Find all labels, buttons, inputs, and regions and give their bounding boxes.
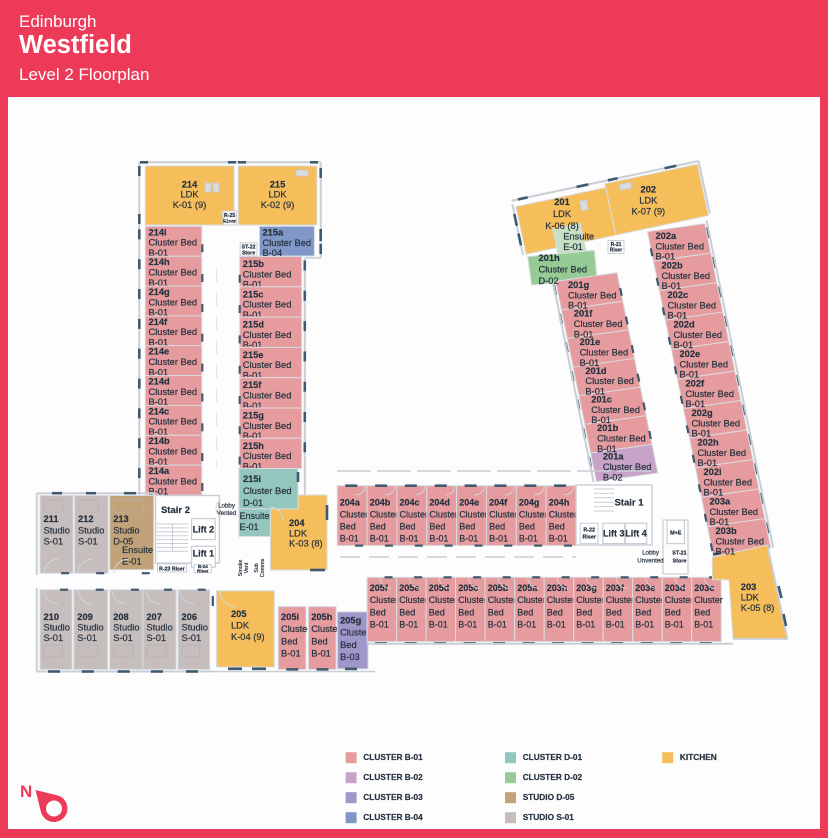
svg-text:215h: 215h xyxy=(243,441,265,451)
svg-text:Cluster: Cluster xyxy=(400,510,429,520)
svg-text:Bed: Bed xyxy=(458,607,474,617)
svg-text:Bed: Bed xyxy=(370,607,386,617)
svg-text:B-01: B-01 xyxy=(517,620,536,630)
svg-text:214e: 214e xyxy=(149,347,170,357)
svg-text:202d: 202d xyxy=(674,319,696,329)
svg-text:Cluster: Cluster xyxy=(429,510,458,520)
svg-text:211: 211 xyxy=(44,514,59,524)
svg-text:214d: 214d xyxy=(149,377,171,387)
svg-text:Cluster Bed: Cluster Bed xyxy=(656,241,705,251)
svg-text:Cluster Bed: Cluster Bed xyxy=(568,290,617,300)
svg-text:215d: 215d xyxy=(243,320,265,330)
svg-text:203e: 203e xyxy=(635,583,655,593)
svg-text:KITCHEN: KITCHEN xyxy=(680,752,717,762)
svg-text:Lift 1: Lift 1 xyxy=(193,549,215,559)
svg-text:CLUSTER D-02: CLUSTER D-02 xyxy=(523,772,583,782)
svg-text:R-22: R-22 xyxy=(583,528,595,534)
svg-text:B-01: B-01 xyxy=(281,649,301,659)
svg-text:201a: 201a xyxy=(603,452,625,462)
svg-text:B-02: B-02 xyxy=(603,472,623,482)
svg-text:CLUSTER B-02: CLUSTER B-02 xyxy=(363,772,423,782)
svg-text:Cluster Bed: Cluster Bed xyxy=(149,297,198,307)
svg-text:214: 214 xyxy=(182,180,198,190)
svg-text:205i: 205i xyxy=(281,612,299,622)
svg-text:Lift 2: Lift 2 xyxy=(193,525,215,535)
svg-text:S-01: S-01 xyxy=(78,537,98,547)
svg-text:204e: 204e xyxy=(459,498,479,508)
svg-text:Cluster: Cluster xyxy=(665,595,694,605)
svg-text:Bed: Bed xyxy=(311,636,328,646)
svg-text:Cluster: Cluster xyxy=(519,510,548,520)
svg-text:B-01: B-01 xyxy=(716,547,736,557)
svg-text:B-01: B-01 xyxy=(694,620,713,630)
svg-text:CLUSTER D-01: CLUSTER D-01 xyxy=(523,752,583,762)
svg-text:Studio: Studio xyxy=(44,525,70,535)
svg-text:Cluster Bed: Cluster Bed xyxy=(692,418,741,428)
svg-text:E-01: E-01 xyxy=(240,522,259,532)
svg-text:Edinburgh: Edinburgh xyxy=(19,12,97,31)
svg-text:Cluster Bed: Cluster Bed xyxy=(680,359,729,369)
svg-text:205f: 205f xyxy=(370,583,389,593)
svg-text:Bed: Bed xyxy=(340,640,357,650)
svg-text:B-01: B-01 xyxy=(340,534,359,544)
svg-text:Cluster: Cluster xyxy=(399,595,428,605)
svg-text:Cluster: Cluster xyxy=(488,595,517,605)
svg-text:K-04 (9): K-04 (9) xyxy=(231,632,265,642)
svg-text:B-01: B-01 xyxy=(665,620,684,630)
svg-text:S-01: S-01 xyxy=(77,633,97,643)
svg-text:202f: 202f xyxy=(686,378,706,388)
svg-text:Lift 4: Lift 4 xyxy=(625,529,647,539)
svg-text:Cluster: Cluster xyxy=(547,595,576,605)
svg-text:201c: 201c xyxy=(591,394,612,404)
svg-text:B-01: B-01 xyxy=(458,620,477,630)
svg-text:S-01: S-01 xyxy=(44,537,64,547)
svg-text:B-01: B-01 xyxy=(489,534,508,544)
svg-text:209: 209 xyxy=(77,612,93,622)
svg-text:K-03 (8): K-03 (8) xyxy=(289,539,323,549)
svg-text:B-03: B-03 xyxy=(340,652,360,662)
svg-text:Cluster Bed: Cluster Bed xyxy=(698,448,747,458)
svg-text:Bed: Bed xyxy=(488,607,504,617)
svg-text:214h: 214h xyxy=(149,257,171,267)
svg-text:Cluster Bed: Cluster Bed xyxy=(591,405,640,415)
svg-text:Bed: Bed xyxy=(694,607,710,617)
svg-text:Bed: Bed xyxy=(281,636,298,646)
svg-text:201d: 201d xyxy=(585,366,607,376)
svg-text:Bed: Bed xyxy=(489,522,505,532)
svg-text:Cluster Bed: Cluster Bed xyxy=(716,536,765,546)
svg-text:Lobby: Lobby xyxy=(218,503,236,510)
svg-text:215: 215 xyxy=(270,180,286,190)
svg-text:Ensuite: Ensuite xyxy=(240,511,270,521)
svg-text:STUDIO S-01: STUDIO S-01 xyxy=(523,812,575,822)
svg-text:Cluster Bed: Cluster Bed xyxy=(243,391,292,401)
svg-text:204f: 204f xyxy=(489,498,508,508)
svg-text:Studio: Studio xyxy=(182,623,208,633)
svg-text:Bed: Bed xyxy=(576,607,592,617)
svg-text:203b: 203b xyxy=(716,526,738,536)
svg-text:B-01: B-01 xyxy=(370,620,389,630)
svg-text:213: 213 xyxy=(113,514,129,524)
svg-text:E-01: E-01 xyxy=(563,242,583,252)
svg-text:Cluster Bed: Cluster Bed xyxy=(668,300,717,310)
svg-text:Cluster Bed: Cluster Bed xyxy=(243,360,292,370)
svg-text:215e: 215e xyxy=(243,350,264,360)
svg-text:Cluster: Cluster xyxy=(281,624,310,634)
svg-text:214f: 214f xyxy=(149,317,169,327)
svg-text:Cluster: Cluster xyxy=(459,510,488,520)
svg-text:Riser: Riser xyxy=(582,535,596,541)
svg-text:Studio: Studio xyxy=(146,623,172,633)
svg-text:Ensuite: Ensuite xyxy=(122,545,153,555)
svg-text:201g: 201g xyxy=(568,280,590,290)
svg-text:208: 208 xyxy=(113,612,129,622)
svg-text:214c: 214c xyxy=(149,406,170,416)
svg-text:Cluster Bed: Cluster Bed xyxy=(574,319,623,329)
svg-text:Lobby: Lobby xyxy=(642,550,660,557)
svg-text:Cluster Bed: Cluster Bed xyxy=(263,238,312,248)
svg-text:Unvented: Unvented xyxy=(637,558,664,565)
svg-text:B-01: B-01 xyxy=(429,620,448,630)
svg-text:215i: 215i xyxy=(243,474,261,484)
svg-text:202e: 202e xyxy=(680,349,701,359)
svg-text:Level 2 Floorplan: Level 2 Floorplan xyxy=(19,65,149,84)
svg-text:204g: 204g xyxy=(519,498,540,508)
svg-text:R-23 Riser: R-23 Riser xyxy=(159,567,185,573)
svg-text:203c: 203c xyxy=(694,583,714,593)
svg-text:202h: 202h xyxy=(698,437,720,447)
svg-text:201f: 201f xyxy=(574,309,594,319)
svg-text:LDK: LDK xyxy=(741,592,760,602)
svg-text:Cluster Bed: Cluster Bed xyxy=(149,238,198,248)
svg-text:210: 210 xyxy=(44,612,60,622)
svg-text:204a: 204a xyxy=(340,498,361,508)
svg-text:205: 205 xyxy=(231,609,247,619)
svg-text:LDK: LDK xyxy=(289,528,308,538)
svg-text:B-01: B-01 xyxy=(576,620,595,630)
svg-text:202c: 202c xyxy=(668,290,689,300)
svg-text:215b: 215b xyxy=(243,259,265,269)
svg-text:201e: 201e xyxy=(580,337,601,347)
svg-text:D-02: D-02 xyxy=(539,276,559,286)
svg-text:Cluster Bed: Cluster Bed xyxy=(686,389,735,399)
svg-text:CLUSTER B-03: CLUSTER B-03 xyxy=(363,792,423,802)
svg-text:LDK: LDK xyxy=(268,190,287,200)
svg-text:215g: 215g xyxy=(243,411,265,421)
svg-text:Cluster Bed: Cluster Bed xyxy=(149,387,198,397)
svg-text:Cluster Bed: Cluster Bed xyxy=(149,476,198,486)
svg-text:CLUSTER B-01: CLUSTER B-01 xyxy=(363,752,423,762)
svg-text:Cluster: Cluster xyxy=(489,510,518,520)
svg-text:CLUSTER B-04: CLUSTER B-04 xyxy=(363,812,423,822)
svg-text:Cluster: Cluster xyxy=(370,510,399,520)
svg-text:S-01: S-01 xyxy=(182,633,202,643)
svg-text:Cluster: Cluster xyxy=(606,595,635,605)
svg-text:Cluster Bed: Cluster Bed xyxy=(243,269,292,279)
svg-text:B-01: B-01 xyxy=(311,649,331,659)
svg-text:Cluster Bed: Cluster Bed xyxy=(149,417,198,427)
svg-text:Bed: Bed xyxy=(517,607,533,617)
svg-text:Cluster Bed: Cluster Bed xyxy=(710,507,759,517)
svg-text:Riser: Riser xyxy=(610,248,623,254)
svg-text:Comms: Comms xyxy=(260,558,266,577)
svg-text:Bed: Bed xyxy=(400,522,416,532)
svg-text:Cluster: Cluster xyxy=(694,595,723,605)
svg-text:204b: 204b xyxy=(370,498,391,508)
svg-text:Riser: Riser xyxy=(197,568,209,573)
svg-text:201b: 201b xyxy=(597,423,619,433)
svg-text:Stair 1: Stair 1 xyxy=(614,498,644,509)
svg-text:Cluster: Cluster xyxy=(429,595,458,605)
svg-text:LDK: LDK xyxy=(180,190,199,200)
svg-text:B-01: B-01 xyxy=(399,620,418,630)
svg-text:Cluster Bed: Cluster Bed xyxy=(243,451,292,461)
svg-text:M+E: M+E xyxy=(670,531,682,537)
svg-text:Cluster: Cluster xyxy=(458,595,487,605)
svg-text:Cluster Bed: Cluster Bed xyxy=(585,376,634,386)
svg-text:Bed: Bed xyxy=(549,522,565,532)
svg-text:N: N xyxy=(20,782,32,801)
svg-text:Bed: Bed xyxy=(340,522,356,532)
svg-text:214b: 214b xyxy=(149,436,171,446)
svg-text:Westfield: Westfield xyxy=(19,31,132,59)
svg-text:Cluster: Cluster xyxy=(517,595,546,605)
svg-text:202g: 202g xyxy=(692,408,714,418)
svg-text:Cluster Bed: Cluster Bed xyxy=(149,268,198,278)
svg-text:Bed: Bed xyxy=(547,607,563,617)
svg-text:Bed: Bed xyxy=(399,607,415,617)
svg-text:E-01: E-01 xyxy=(122,556,142,566)
svg-text:Store: Store xyxy=(242,250,255,256)
svg-text:LDK: LDK xyxy=(553,209,572,219)
svg-text:K-05 (8): K-05 (8) xyxy=(741,603,775,613)
svg-text:Cluster Bed: Cluster Bed xyxy=(243,300,292,310)
svg-text:B-01: B-01 xyxy=(400,534,419,544)
svg-text:D-01: D-01 xyxy=(243,498,263,508)
svg-text:201h: 201h xyxy=(539,253,561,263)
svg-text:Cluster: Cluster xyxy=(576,595,605,605)
svg-text:B-01: B-01 xyxy=(370,534,389,544)
svg-text:Cluster Bed: Cluster Bed xyxy=(539,265,588,275)
svg-text:205e: 205e xyxy=(399,583,419,593)
svg-text:Bed: Bed xyxy=(606,607,622,617)
svg-text:Cluster: Cluster xyxy=(340,510,369,520)
svg-text:S-01: S-01 xyxy=(44,633,64,643)
svg-text:STUDIO D-05: STUDIO D-05 xyxy=(523,792,575,802)
svg-text:Studio: Studio xyxy=(78,525,104,535)
svg-text:B-01: B-01 xyxy=(519,534,538,544)
svg-text:Vent: Vent xyxy=(244,562,250,573)
svg-text:LDK: LDK xyxy=(639,196,658,206)
svg-text:205c: 205c xyxy=(458,583,478,593)
svg-text:202b: 202b xyxy=(662,260,684,270)
svg-text:215a: 215a xyxy=(263,228,285,238)
svg-text:LDK: LDK xyxy=(231,620,250,630)
svg-text:202i: 202i xyxy=(704,467,722,477)
svg-text:B-01: B-01 xyxy=(606,620,625,630)
svg-text:Bed: Bed xyxy=(459,522,475,532)
svg-text:Studio: Studio xyxy=(113,525,139,535)
svg-text:K-06 (8): K-06 (8) xyxy=(545,221,579,231)
svg-text:Cluster Bed: Cluster Bed xyxy=(704,477,753,487)
svg-text:204c: 204c xyxy=(400,498,420,508)
svg-text:S-01: S-01 xyxy=(113,633,133,643)
svg-text:Cluster Bed: Cluster Bed xyxy=(674,330,723,340)
svg-text:K-02 (9): K-02 (9) xyxy=(261,200,295,210)
svg-text:Bed: Bed xyxy=(370,522,386,532)
svg-text:Bed: Bed xyxy=(429,607,445,617)
svg-text:Cluster Bed: Cluster Bed xyxy=(580,348,629,358)
svg-text:214i: 214i xyxy=(149,227,167,237)
svg-text:B-01: B-01 xyxy=(459,534,478,544)
svg-text:203f: 203f xyxy=(606,583,625,593)
svg-text:202a: 202a xyxy=(656,231,678,241)
svg-text:B-01: B-01 xyxy=(549,534,568,544)
svg-text:Bed: Bed xyxy=(519,522,535,532)
svg-text:204h: 204h xyxy=(549,498,570,508)
svg-text:206: 206 xyxy=(182,612,198,622)
svg-text:Studio: Studio xyxy=(113,623,139,633)
svg-text:Store: Store xyxy=(673,559,687,565)
svg-text:Bed: Bed xyxy=(429,522,445,532)
svg-text:B-01: B-01 xyxy=(429,534,448,544)
svg-text:B-01: B-01 xyxy=(635,620,654,630)
svg-text:Bed: Bed xyxy=(635,607,651,617)
svg-text:Cluster Bed: Cluster Bed xyxy=(243,421,292,431)
svg-text:Cluster: Cluster xyxy=(370,595,399,605)
svg-text:Cluster Bed: Cluster Bed xyxy=(662,271,711,281)
svg-text:Studio: Studio xyxy=(77,623,103,633)
svg-text:Cluster Bed: Cluster Bed xyxy=(597,433,646,443)
svg-text:Cluster: Cluster xyxy=(549,510,578,520)
svg-text:Lift 3: Lift 3 xyxy=(603,529,625,539)
svg-text:Cluster: Cluster xyxy=(635,595,664,605)
svg-text:204d: 204d xyxy=(429,498,450,508)
svg-text:ST-21: ST-21 xyxy=(672,551,686,557)
svg-text:B-01: B-01 xyxy=(547,620,566,630)
svg-text:207: 207 xyxy=(146,612,162,622)
svg-text:Cluster: Cluster xyxy=(340,628,369,638)
svg-text:212: 212 xyxy=(78,514,94,524)
svg-text:205h: 205h xyxy=(311,612,333,622)
svg-text:Cluster: Cluster xyxy=(311,624,340,634)
svg-text:201: 201 xyxy=(554,197,570,207)
svg-text:B-01: B-01 xyxy=(488,620,507,630)
svg-text:215f: 215f xyxy=(243,380,263,390)
svg-text:214a: 214a xyxy=(149,466,171,476)
svg-text:Cluster Bed: Cluster Bed xyxy=(243,330,292,340)
svg-text:K-07 (9): K-07 (9) xyxy=(632,207,666,217)
svg-text:205g: 205g xyxy=(340,616,362,626)
svg-text:214g: 214g xyxy=(149,287,171,297)
svg-text:K-01 (9): K-01 (9) xyxy=(173,200,207,210)
svg-text:202: 202 xyxy=(641,185,657,195)
svg-text:Studio: Studio xyxy=(44,623,70,633)
svg-text:Cluster Bed: Cluster Bed xyxy=(149,447,198,457)
svg-text:S-01: S-01 xyxy=(146,633,166,643)
svg-text:203a: 203a xyxy=(710,496,732,506)
svg-text:215c: 215c xyxy=(243,289,264,299)
svg-text:Stair 2: Stair 2 xyxy=(161,505,190,516)
svg-text:Bed: Bed xyxy=(665,607,681,617)
svg-text:Cluster Bed: Cluster Bed xyxy=(149,327,198,337)
svg-text:203: 203 xyxy=(741,582,757,592)
svg-text:204: 204 xyxy=(289,518,305,528)
svg-text:Cluster Bed: Cluster Bed xyxy=(149,357,198,367)
svg-text:Ensuite: Ensuite xyxy=(563,231,594,241)
svg-text:Cluster Bed: Cluster Bed xyxy=(243,486,292,496)
